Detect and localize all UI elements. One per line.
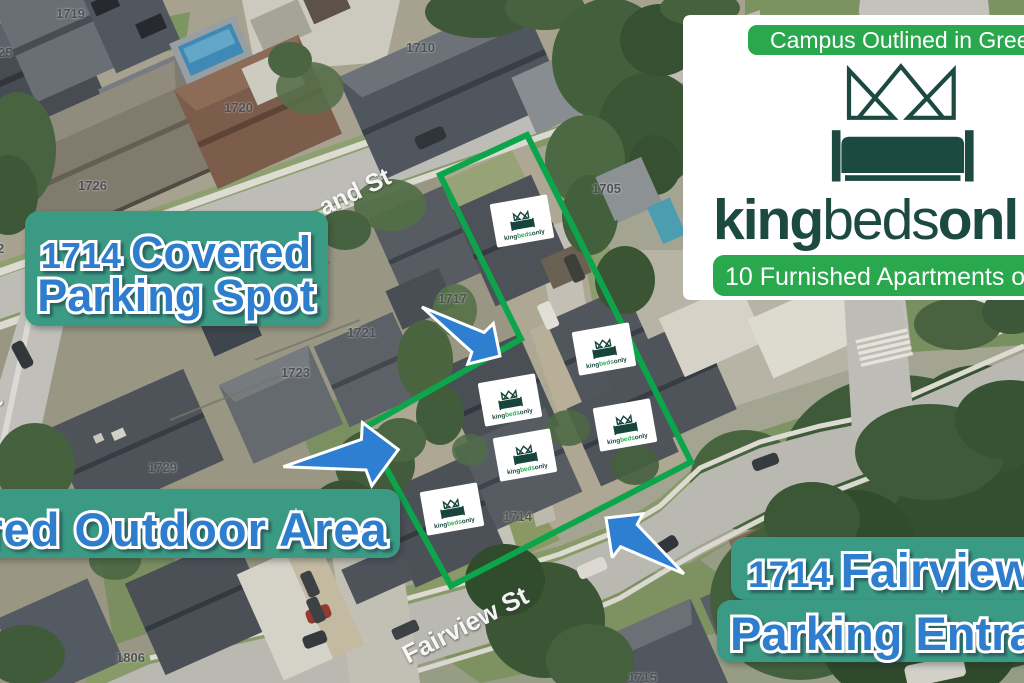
svg-text:kingbedsonl: kingbedsonl [713,188,1017,252]
svg-text:10 Furnished Apartments on C: 10 Furnished Apartments on C [725,263,1024,291]
svg-text:Campus Outlined in Green: Campus Outlined in Green [770,27,1024,53]
svg-text:Parking Spot: Parking Spot [37,270,315,321]
svg-text:Parking Entrance: Parking Entrance [730,607,1024,660]
svg-text:Secured Outdoor Area: Secured Outdoor Area [0,503,388,556]
